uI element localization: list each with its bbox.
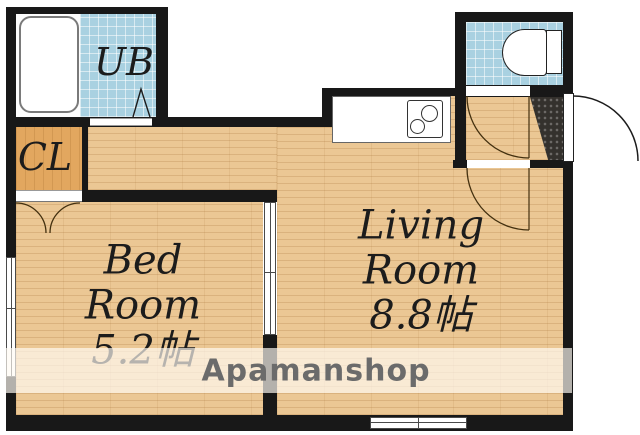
living-room-label: Living Room 8.8帖 xyxy=(358,204,484,339)
wall-bottom xyxy=(6,415,573,431)
bedroom-window-tick xyxy=(7,308,15,309)
bedroom-label-line1: Bed xyxy=(85,239,201,284)
closet-doorway xyxy=(16,190,82,202)
sliding-door-tick xyxy=(265,272,275,273)
wall-toilet-top xyxy=(455,12,573,22)
stove xyxy=(407,100,443,138)
entrance-door-arc xyxy=(573,96,638,161)
wall-kitchen-top xyxy=(322,88,466,96)
wall-corridor-top xyxy=(6,117,332,127)
wall-top xyxy=(6,7,168,14)
living-window xyxy=(370,417,467,429)
closet-label: CL xyxy=(18,135,72,179)
wall-ub-right xyxy=(156,7,168,127)
wall-bedroom-top xyxy=(82,190,277,202)
sliding-door xyxy=(264,202,276,335)
entrance-door xyxy=(563,93,574,162)
toilet-tank xyxy=(546,30,562,74)
sliding-door-track xyxy=(270,203,271,334)
watermark-text: Apamanshop xyxy=(201,354,430,389)
living-doorway xyxy=(467,160,529,168)
wall-hall-bottom-left xyxy=(453,160,467,168)
floor-plan: UB CL Bed Room 5.2帖 Living Room 8.8帖 Apa… xyxy=(0,0,640,435)
bathtub xyxy=(19,16,79,113)
stove-burner-1 xyxy=(421,105,438,122)
unit-bath-label: UB xyxy=(94,40,154,84)
stove-burner-2 xyxy=(410,119,425,134)
corridor-floor xyxy=(88,127,277,190)
living-room-size: 8.8帖 xyxy=(358,294,484,339)
wall-closet-right xyxy=(82,127,88,202)
toilet-doorway xyxy=(466,86,530,96)
toilet-bowl xyxy=(502,29,547,76)
living-label-line2: Room xyxy=(358,249,484,294)
wall-right-upper xyxy=(563,12,573,95)
living-window-tick xyxy=(418,418,419,428)
bedroom-label-line2: Room xyxy=(85,284,201,329)
living-label-line1: Living xyxy=(358,204,484,249)
unit-bath-doorway xyxy=(90,118,152,126)
